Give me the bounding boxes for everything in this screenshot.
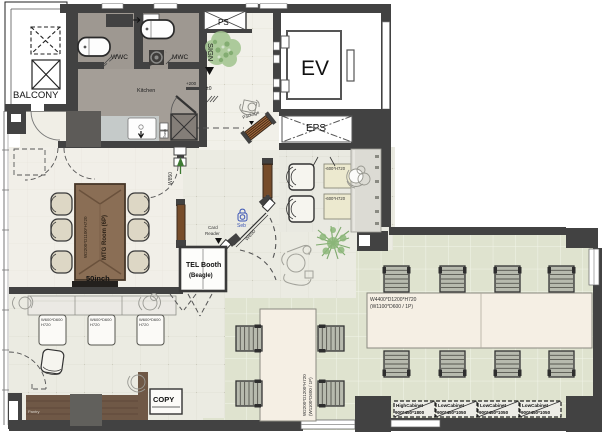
- svg-text:900*450*1050: 900*450*1050: [479, 410, 509, 415]
- svg-text:900*450*1050: 900*450*1050: [521, 410, 551, 415]
- svg-text:COPY: COPY: [153, 395, 174, 404]
- svg-text:±0: ±0: [206, 86, 212, 92]
- svg-text:(Beagle): (Beagle): [189, 273, 213, 279]
- svg-text:LowCabinet: LowCabinet: [438, 403, 465, 408]
- svg-text:MWC: MWC: [172, 54, 189, 61]
- svg-text:W2200*D1200*H720: W2200*D1200*H720: [302, 374, 307, 416]
- svg-text:BALCONY: BALCONY: [13, 90, 59, 101]
- svg-text:MTG Room (6P): MTG Room (6P): [102, 215, 108, 260]
- svg-text:900*450*1050: 900*450*1050: [437, 410, 467, 415]
- svg-text:+200: +200: [186, 81, 197, 86]
- svg-text:SIGN: SIGN: [206, 43, 215, 61]
- svg-text:LowCabinet: LowCabinet: [522, 403, 549, 408]
- svg-text:WWC: WWC: [111, 54, 128, 61]
- svg-text:H720: H720: [90, 322, 100, 327]
- svg-text:(W1100*D600 / 1P): (W1100*D600 / 1P): [370, 304, 413, 310]
- svg-text:Seb: Seb: [237, 223, 246, 229]
- svg-text:EV: EV: [301, 57, 329, 80]
- svg-text:(W1100*D600 / 1P): (W1100*D600 / 1P): [308, 377, 313, 416]
- svg-text:LowCabinet: LowCabinet: [480, 403, 507, 408]
- svg-text:HighCabinet: HighCabinet: [396, 403, 424, 408]
- svg-text:H720: H720: [41, 322, 51, 327]
- svg-text:H720: H720: [139, 322, 149, 327]
- svg-text:W2200*D1100*H720: W2200*D1100*H720: [83, 216, 88, 258]
- svg-text:TEL Booth: TEL Booth: [186, 262, 221, 269]
- svg-text:W4400*D1200*H720: W4400*D1200*H720: [370, 297, 417, 303]
- svg-text:900*450*1800: 900*450*1800: [395, 410, 425, 415]
- svg-text:Pantry: Pantry: [28, 409, 40, 414]
- svg-text:Reader: Reader: [205, 231, 220, 236]
- svg-text:-600*H720: -600*H720: [325, 196, 346, 201]
- svg-text:PS: PS: [218, 18, 229, 27]
- svg-text:Kitchen: Kitchen: [137, 88, 155, 94]
- svg-text:EPS: EPS: [306, 123, 326, 134]
- svg-text:Card: Card: [208, 225, 218, 230]
- svg-text:Trash: Trash: [163, 129, 167, 138]
- svg-text:-600*H720: -600*H720: [325, 166, 346, 171]
